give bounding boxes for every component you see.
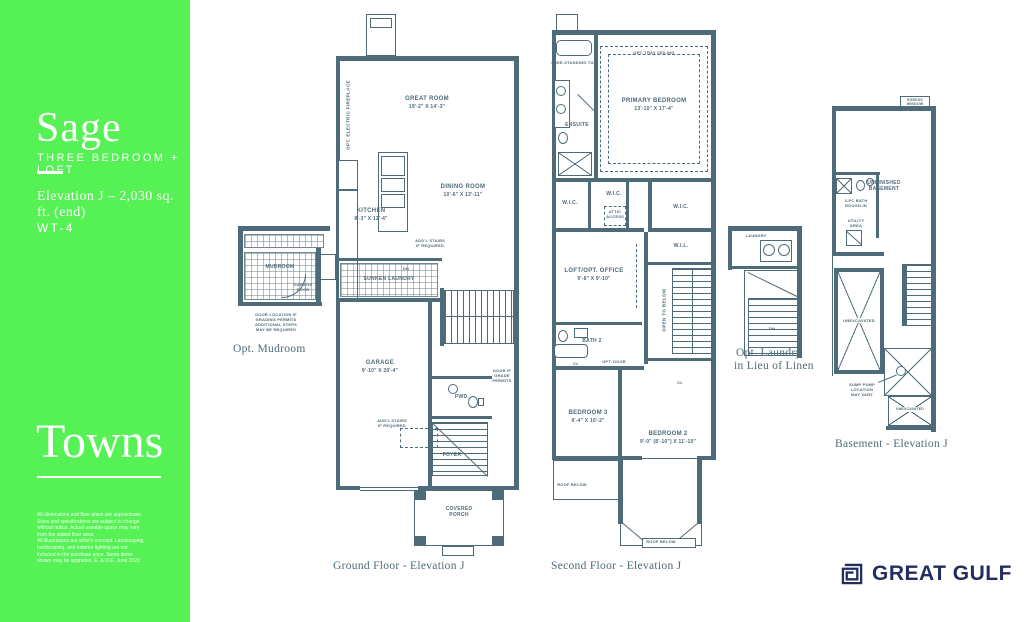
dn-label: DN	[769, 326, 775, 331]
porch-outline	[414, 490, 504, 546]
sink	[574, 328, 588, 338]
wall	[336, 56, 518, 61]
cold-cellar-area	[884, 348, 932, 396]
porch-post	[414, 490, 426, 500]
ground-floor-caption: Ground Floor - Elevation J	[333, 560, 465, 572]
wall	[648, 262, 715, 265]
wall	[238, 226, 243, 306]
stair-rail	[444, 316, 514, 317]
wall	[514, 56, 519, 490]
wall	[552, 228, 644, 232]
mudroom-label: MUDROOM	[265, 264, 294, 270]
roof-below-label: ROOF BELOW	[557, 482, 587, 487]
wall	[728, 266, 802, 269]
wall	[588, 182, 591, 228]
opt-wall-dashed	[636, 244, 637, 308]
roof-below-label: ROOF BELOW	[646, 539, 676, 544]
powder-room-label: PWD.	[455, 394, 469, 400]
great-gulf-logo: GREAT GULF	[841, 562, 1012, 586]
boundary-line	[832, 256, 833, 376]
disclaimer-line: included in the purchase price. Some ite…	[37, 552, 165, 559]
wall	[552, 178, 715, 182]
staircase	[906, 264, 932, 326]
great-room-label: GREAT ROOM	[405, 96, 449, 103]
wall	[618, 366, 622, 460]
sink	[381, 156, 405, 176]
opt-laundry-caption-1: Opt. Laundry	[736, 347, 802, 359]
opt-laundry-caption-2: in Lieu of Linen	[734, 360, 814, 372]
wall	[552, 322, 642, 325]
fireplace-note: OPT. ELECTRIC FIREPLACE	[346, 80, 351, 150]
wall	[832, 252, 884, 256]
disclaimer-line: shown may be upgrades. E. & O.E. June 20…	[37, 558, 165, 565]
mudroom-bench-hatch	[244, 234, 324, 248]
island-cabinet	[381, 178, 405, 192]
bay-outline	[620, 458, 702, 546]
wic-label: W.I.C.	[673, 204, 688, 210]
wall	[432, 376, 492, 379]
bedroom3-dims: 9'-4" X 10'-2"	[571, 418, 604, 425]
closet-label: CL	[677, 380, 683, 385]
wall	[886, 426, 936, 430]
disclaimer-line: without notice. Actual useable space may…	[37, 525, 165, 532]
island-cabinet	[381, 194, 405, 208]
primary-bedroom-label: PRIMARY BEDROOM	[622, 98, 687, 105]
ensuite-label: ENSUITE	[565, 122, 589, 128]
bedroom3-label: BEDROOM 3	[568, 410, 607, 417]
utility-area-label: UTILITY AREA	[843, 218, 869, 228]
bathtub	[556, 40, 592, 56]
sink	[448, 384, 458, 394]
porch-step	[442, 546, 474, 556]
great-room-dims: 19'-2" X 14'-3"	[409, 104, 445, 111]
basement-caption: Basement - Elevation J	[835, 438, 948, 450]
bedroom2-label: BEDROOM 2	[648, 431, 687, 438]
toilet	[468, 396, 478, 408]
wall	[728, 226, 802, 231]
second-floor-caption: Second Floor - Elevation J	[551, 560, 681, 572]
disclaimer-line: from the stated floor area.	[37, 532, 165, 539]
toilet	[558, 132, 568, 144]
wall	[238, 226, 330, 231]
sink	[556, 104, 566, 114]
porch-post	[414, 536, 426, 546]
garage-dims: 9'-10" X 20'-4"	[362, 368, 398, 375]
unexcavated-label: UNEXCAVATED	[895, 407, 925, 412]
range-counter	[338, 160, 358, 190]
window-bay-inner	[370, 18, 392, 28]
wall	[648, 182, 652, 228]
disclaimer-line: All illustrations are artist's concept. …	[37, 538, 165, 545]
wall	[711, 30, 716, 460]
stairs-note: ADD'L STAIRS IF REQUIRED	[375, 418, 409, 428]
collection-name: Towns	[36, 414, 163, 469]
disclaimer-line: hardscaping, and exterior lighting are n…	[37, 545, 165, 552]
garage-door-line	[360, 490, 418, 491]
wall	[336, 258, 442, 261]
stairs-note: ADD'L STAIRS IF REQUIRED	[413, 238, 447, 248]
tray-ceiling-note: OPT. TRAY CEILING	[633, 50, 674, 55]
garage-door-label: GARAGE DOOR	[292, 282, 314, 292]
shower-glass-line	[577, 94, 595, 112]
mudroom-step	[320, 254, 336, 280]
loft-dims: 9'-8" X 9'-10"	[577, 276, 610, 283]
wall	[238, 302, 322, 306]
mudroom-note: DOOR LOCATION IF GRADING PERMITS ADDITIO…	[254, 312, 298, 332]
opt-mudroom-caption: Opt. Mudroom	[233, 343, 306, 355]
shower-rough-in	[836, 178, 852, 194]
porch-post	[492, 490, 504, 500]
sump-pump-note: SUMP PUMP LOCATION MAY VARY	[846, 382, 878, 397]
open-to-below-note: OPEN TO BELOW	[662, 288, 667, 331]
sump-pump	[896, 366, 906, 376]
bedroom2-dims: 9'-0" (8'-10") X 11'-10"	[640, 439, 696, 446]
elevation-info: Elevation J – 2,030 sq. ft. (end)	[37, 189, 190, 221]
attic-access-note: ATTIC ACCESS	[605, 209, 625, 219]
primary-bedroom-dims: 13'-10" X 17'-4"	[634, 106, 673, 113]
dining-room-label: DINING ROOM	[441, 184, 486, 191]
staircase	[444, 290, 514, 344]
kitchen-dims: 8'-3" X 12'-4"	[354, 216, 387, 223]
toilet-tank	[478, 398, 484, 406]
bath2-label: BATH 2	[582, 338, 602, 344]
basement-window-label: EGRESS WINDOW	[901, 98, 929, 106]
bathtub	[554, 344, 588, 358]
wall	[432, 416, 492, 419]
kitchen-label: KITCHEN	[357, 208, 386, 215]
brand-sidebar: Sage THREE BEDROOM + LOFT Elevation J – …	[0, 0, 190, 622]
tub-note: FREE-STANDING TUB	[551, 60, 596, 65]
wall	[832, 172, 880, 175]
great-gulf-logo-icon	[841, 563, 864, 586]
stair-rail	[692, 268, 693, 354]
great-gulf-logo-text: GREAT GULF	[872, 562, 1012, 586]
closet-label: CL	[573, 361, 579, 366]
garage-label: GARAGE	[366, 360, 394, 367]
garage-door-line	[360, 487, 418, 488]
dining-room-dims: 10'-6" X 13'-11"	[444, 192, 483, 199]
rough-in-note: 3-PC BATH ROUGH-IN	[841, 198, 871, 208]
divider-rule	[37, 476, 161, 478]
wall	[728, 226, 732, 270]
laundry-label: LAUNDRY	[746, 233, 767, 238]
wall	[626, 182, 629, 228]
foyer-label: FOYER	[443, 452, 462, 458]
disclaimer-line: All dimensions and floor plans are appro…	[37, 512, 165, 519]
unexcavated-label: UNEXCAVATED	[842, 318, 876, 323]
wall	[336, 486, 360, 490]
wil-label: W.I.L.	[674, 243, 689, 249]
roof-below-outline	[553, 460, 619, 500]
dn-label: DN	[403, 266, 409, 271]
dryer	[778, 244, 790, 256]
disclaimer-text: All dimensions and floor plans are appro…	[37, 512, 165, 565]
divider-rule	[37, 171, 63, 174]
covered-porch-label: COVERED PORCH	[439, 506, 479, 518]
grade-note: DOOR IF GRADE PERMITS	[490, 368, 514, 383]
toilet	[558, 330, 568, 342]
opt-door-note: OPT. DOOR	[602, 359, 626, 364]
wall	[644, 232, 648, 364]
wic-label: W.I.C.	[562, 200, 577, 206]
disclaimer-line: Sizes and specifications are subject to …	[37, 519, 165, 526]
wall	[552, 30, 716, 35]
unfinished-basement-label: UNFINISHED BASEMENT	[862, 180, 906, 192]
wall	[648, 228, 715, 232]
wall	[644, 358, 715, 361]
laundry-label: SUNKEN LAUNDRY	[354, 276, 424, 282]
washer	[763, 244, 775, 256]
wall	[594, 34, 598, 178]
wall	[832, 106, 936, 111]
unit-code: WT-4	[37, 221, 74, 235]
wall	[552, 366, 644, 370]
porch-post	[492, 536, 504, 546]
wic-label: W.I.C.	[606, 191, 621, 197]
loft-label: LOFT/OPT. OFFICE	[564, 268, 623, 275]
model-name: Sage	[36, 104, 122, 152]
shower-stall	[558, 152, 592, 176]
sink	[556, 86, 566, 96]
